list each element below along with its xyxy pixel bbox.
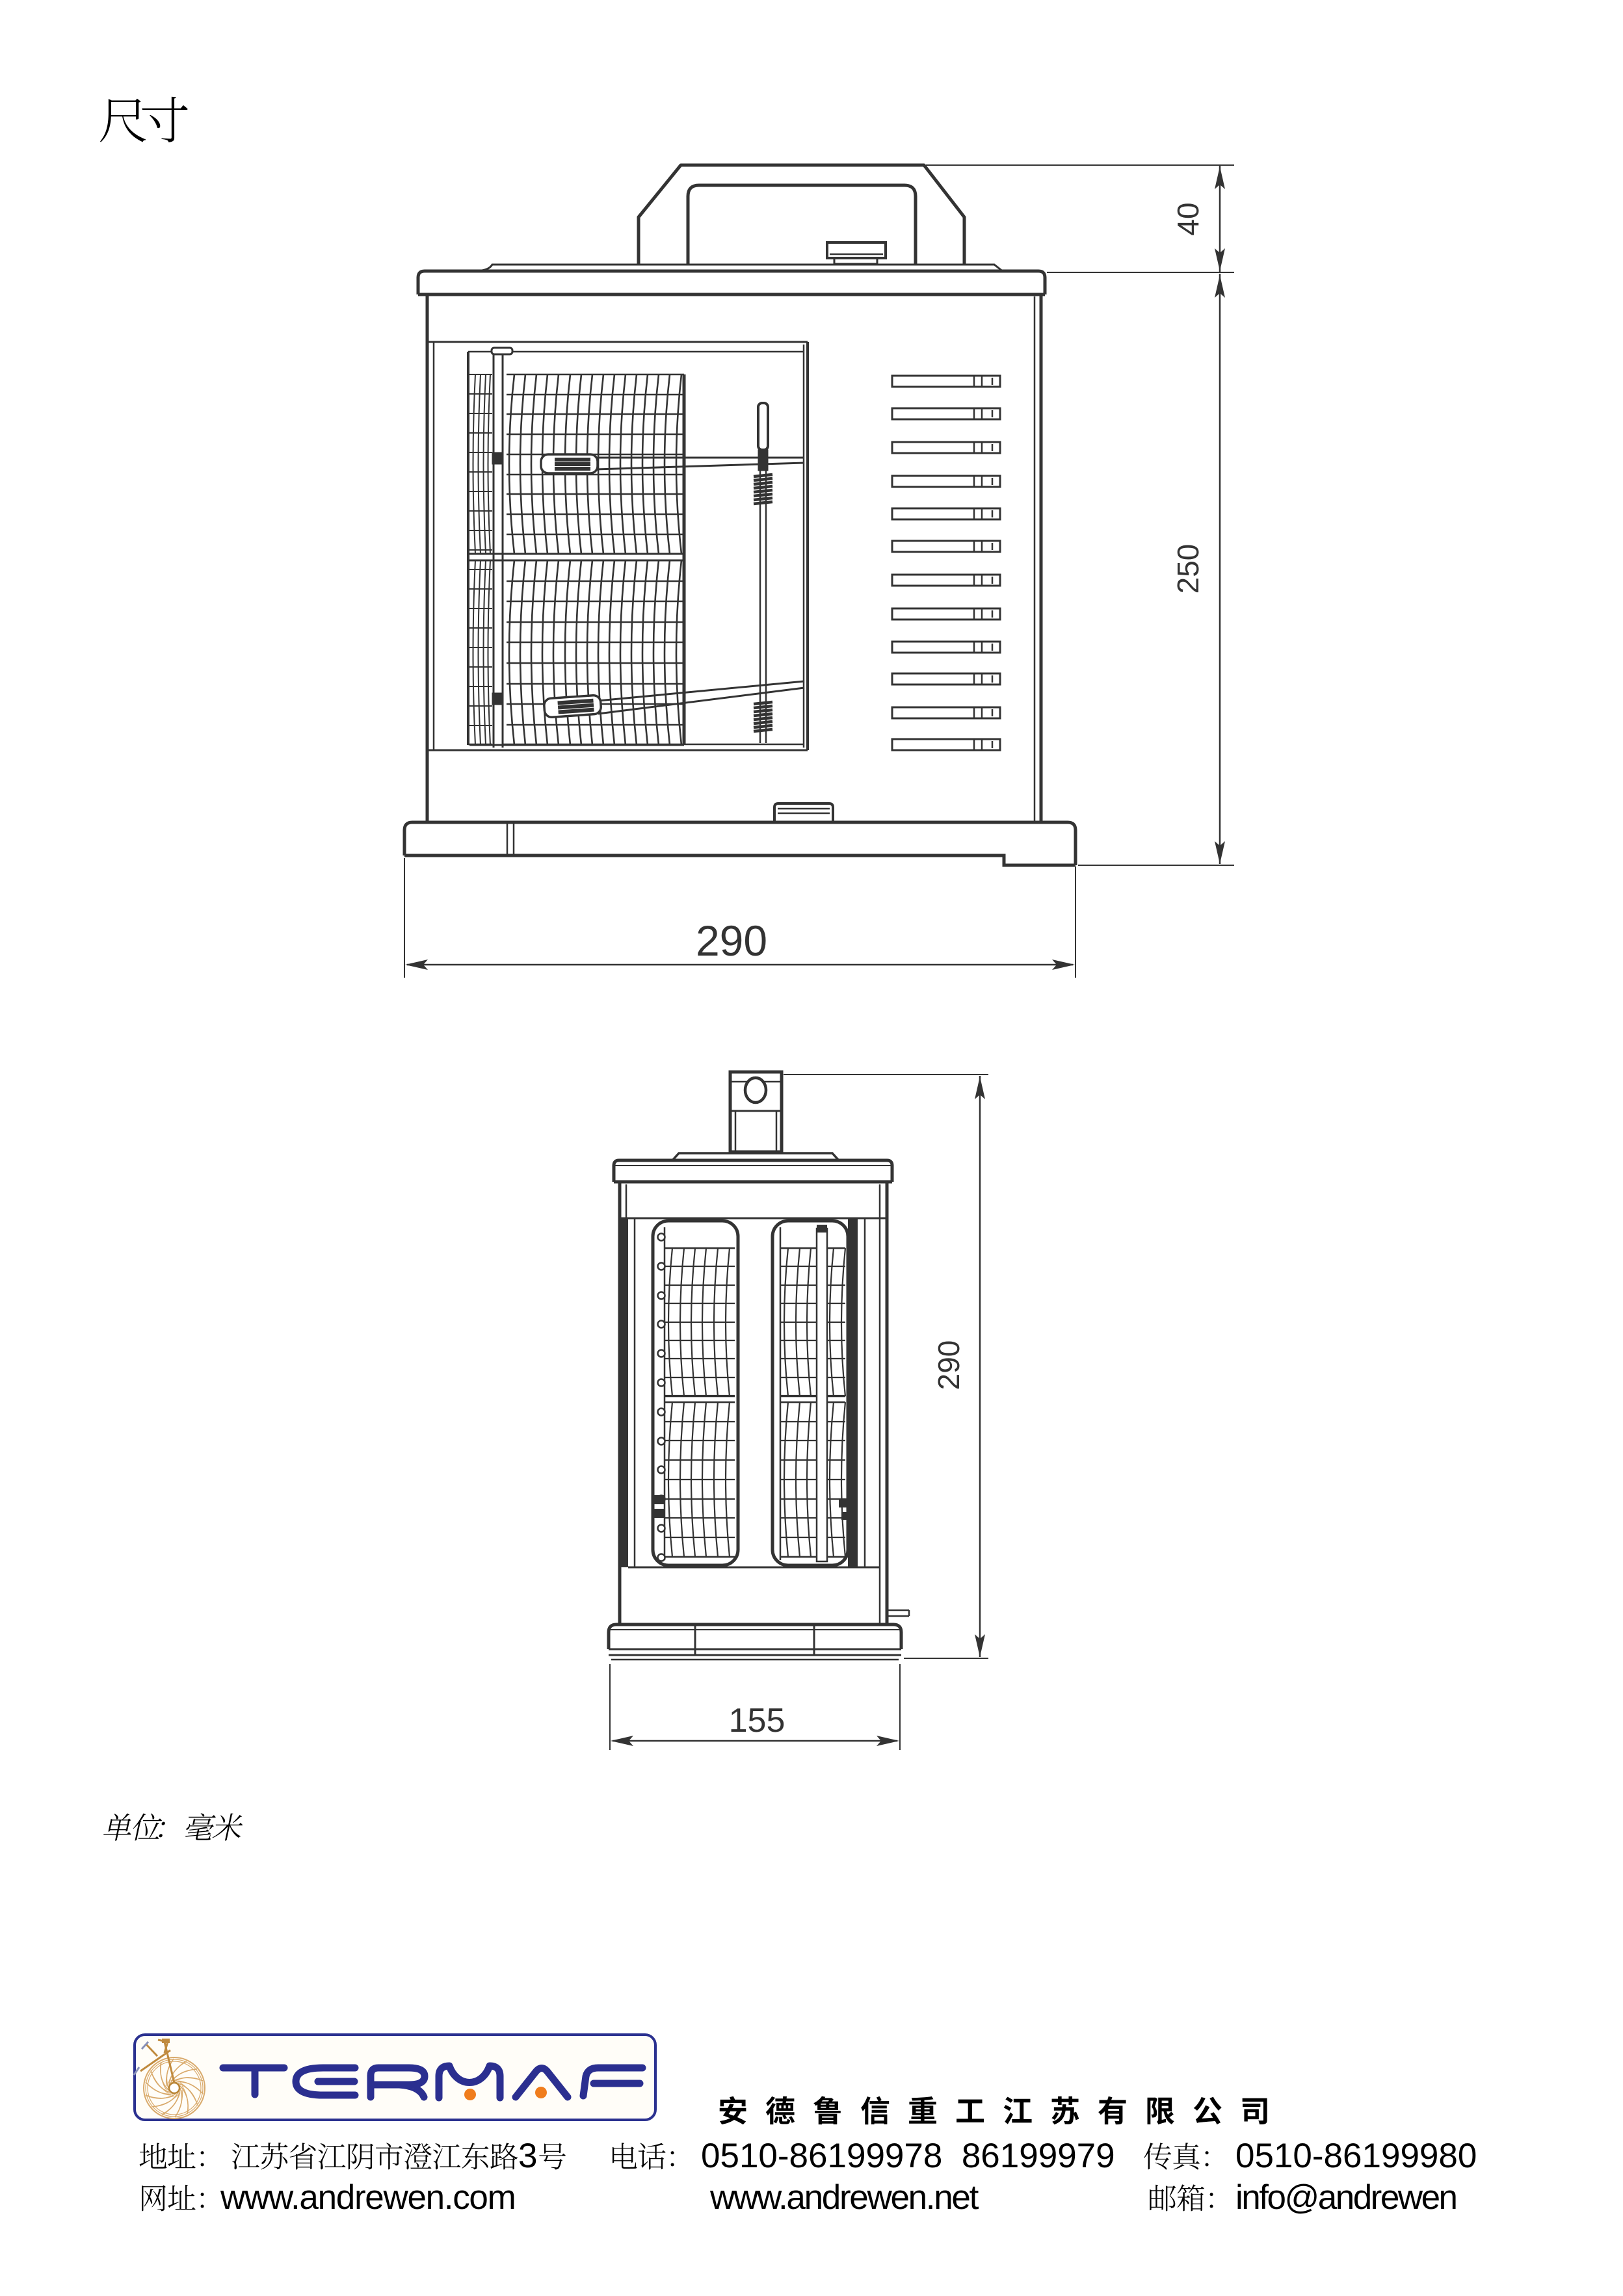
svg-text:0510-86199978 86199979: 0510-86199978 86199979 — [701, 2137, 1115, 2175]
svg-text:40: 40 — [1171, 202, 1205, 235]
svg-text:www.andrewen.net: www.andrewen.net — [709, 2178, 979, 2217]
svg-text:3: 3 — [518, 2137, 537, 2175]
svg-text:www.andrewen.com: www.andrewen.com — [220, 2178, 515, 2217]
svg-text:info@andrewen: info@andrewen — [1235, 2178, 1457, 2217]
svg-text:250: 250 — [1171, 544, 1205, 594]
svg-text:0510-86199980: 0510-86199980 — [1235, 2137, 1477, 2175]
svg-text:290: 290 — [696, 917, 767, 965]
svg-text:155: 155 — [729, 1702, 785, 1740]
svg-text:290: 290 — [932, 1340, 966, 1390]
